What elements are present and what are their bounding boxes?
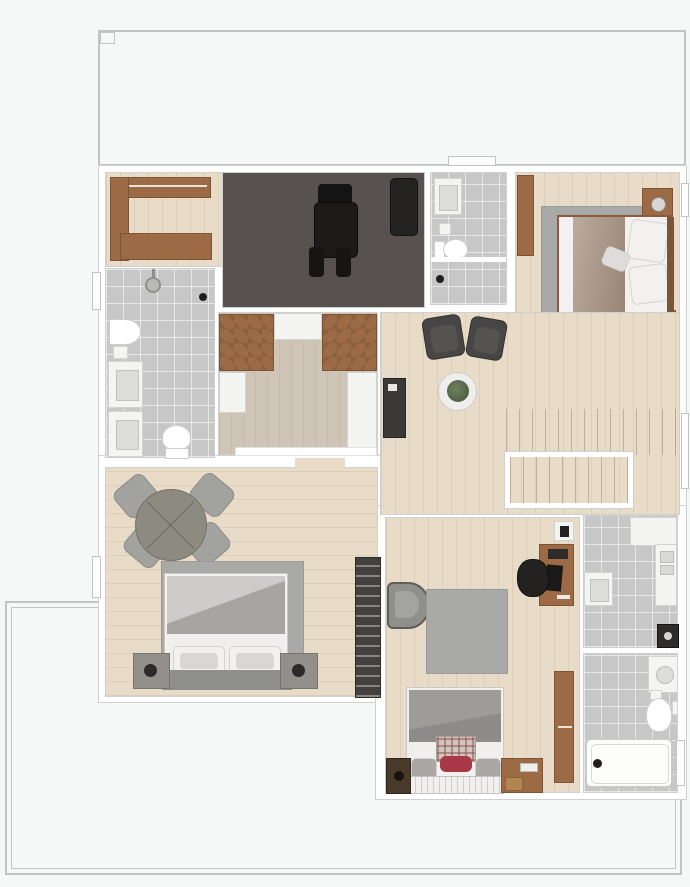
bl-nightstand-right [280, 653, 318, 689]
bed-bm-headboard [408, 776, 504, 794]
vanity-2 [108, 411, 143, 457]
bm-office-chair [517, 559, 549, 597]
bed-tr-pillow-1 [626, 219, 669, 264]
br-upper-washbasin [584, 572, 613, 606]
bathtub [585, 738, 673, 788]
hall-armchair-2 [465, 315, 509, 362]
window-bathtub [676, 740, 685, 786]
hall-armchair-1 [421, 313, 466, 361]
br-upper-appliance-dot [664, 632, 672, 640]
bm-nightstand-left-knob [394, 771, 404, 781]
potted-plant [447, 380, 469, 402]
room-walk-in-closet [218, 312, 378, 455]
br-upper-counter-item-2 [660, 565, 674, 575]
bed-bl-blanket [167, 576, 285, 638]
bm-nightstand-left [386, 758, 411, 794]
bl-shelf-unit [355, 557, 381, 698]
bm-nightstand-right [501, 758, 543, 793]
wardrobe-bottom [120, 233, 212, 260]
media-bench [390, 178, 418, 236]
bed-tr [557, 215, 673, 314]
bm-rug [426, 589, 508, 674]
flush-plate [113, 346, 128, 359]
floor-plan-canvas [0, 0, 690, 887]
round-dining-table [135, 489, 207, 561]
bl-nightstand-left [133, 653, 170, 689]
wall-bidet [109, 319, 141, 345]
bm-armchair [387, 582, 430, 629]
room-bedroom-bottom-middle [385, 517, 580, 793]
closet-baseboard [235, 447, 377, 456]
window-bedroom-bl [92, 556, 101, 598]
bm-nightstand-gold-item [505, 777, 523, 791]
window-left-bath [92, 272, 101, 310]
room-dressing-nook [105, 172, 222, 267]
bm-wall-shelf-top [554, 521, 574, 541]
shower-head [145, 277, 161, 293]
terrace-corner-notch [100, 32, 115, 44]
br-lower-basin [656, 666, 674, 684]
washbasin [434, 178, 462, 215]
stairs-upper-flight [506, 409, 679, 455]
br-lower-toilet [646, 698, 672, 732]
closet-counter-right [322, 314, 377, 371]
br-lower-vanity [648, 656, 678, 693]
bathtub-inner [591, 744, 669, 784]
vanity-2-basin [116, 420, 139, 450]
bed-bm [406, 687, 504, 792]
bl-nightstand-right-knob [292, 664, 305, 677]
hall-armchair-2-seat [473, 326, 501, 355]
shower-door-handle [436, 275, 444, 283]
room-media [222, 172, 425, 308]
bm-wall-shelf-right [554, 671, 574, 783]
toilet-bowl-left-bath [162, 425, 191, 450]
room-bathroom-left [105, 268, 215, 458]
closet-counter-left [219, 314, 274, 371]
table-lamp [651, 197, 666, 212]
stairs-lower-flight [510, 457, 628, 503]
br-upper-counter-right [655, 544, 677, 606]
window-right-2 [681, 413, 689, 489]
bm-desk-books [548, 549, 568, 559]
br-upper-counter-item-1 [660, 551, 674, 563]
bathtub-faucet [593, 759, 602, 768]
shower-partition [431, 257, 506, 262]
terrace-outline-top [98, 30, 686, 166]
bed-bm-red-pillow [440, 756, 472, 772]
recliner-footrest-left [309, 247, 324, 277]
br-upper-counter-top [630, 517, 677, 546]
basin [439, 185, 458, 211]
bath-door-handle [199, 293, 207, 301]
bl-nightstand-left-knob [144, 664, 157, 677]
br-upper-appliance [657, 624, 679, 648]
bedroom-bl-door-opening [295, 458, 345, 470]
bm-nightstand-item [520, 763, 538, 772]
bm-shelf-divider [558, 726, 572, 728]
room-bathroom-br-lower [583, 653, 678, 793]
bm-armchair-seat [395, 591, 419, 618]
hall-round-table [438, 372, 477, 411]
shower-arm [152, 269, 155, 278]
console-item [388, 384, 397, 391]
bed-bl-pillow-right-inner [236, 653, 274, 669]
closet-dresser-right [347, 372, 377, 453]
room-bathroom-top [430, 172, 507, 305]
stairwell-railing [505, 452, 633, 508]
hall-console [383, 378, 406, 438]
bed-bl-headboard [162, 670, 292, 690]
room-hallway [380, 312, 680, 515]
terrace-window-marker [448, 156, 496, 166]
hall-armchair-1-seat [429, 324, 459, 354]
closet-dresser-left [219, 372, 246, 413]
window-right-1 [681, 183, 689, 217]
room-bathroom-br-upper [583, 515, 678, 648]
bm-shelf-item [560, 526, 569, 537]
bed-tr-pillow-2 [628, 263, 670, 305]
br-lower-toilet-button [672, 701, 678, 715]
cistern-box [439, 223, 451, 235]
bed-bl [164, 573, 288, 689]
vanity-1-basin [116, 370, 139, 401]
bed-bl-pillow-left-inner [180, 653, 218, 669]
bedroom-tr-wardrobe [517, 175, 534, 256]
closet-dresser-top [274, 313, 322, 340]
toilet-cistern-left-bath [165, 448, 189, 459]
bm-keyboard [557, 595, 570, 599]
bed-tr-headboard [667, 217, 674, 312]
vanity-1 [108, 361, 143, 408]
recliner-footrest-right [336, 247, 351, 277]
br-upper-basin [590, 579, 609, 602]
room-bedroom-bottom-left [105, 467, 378, 697]
